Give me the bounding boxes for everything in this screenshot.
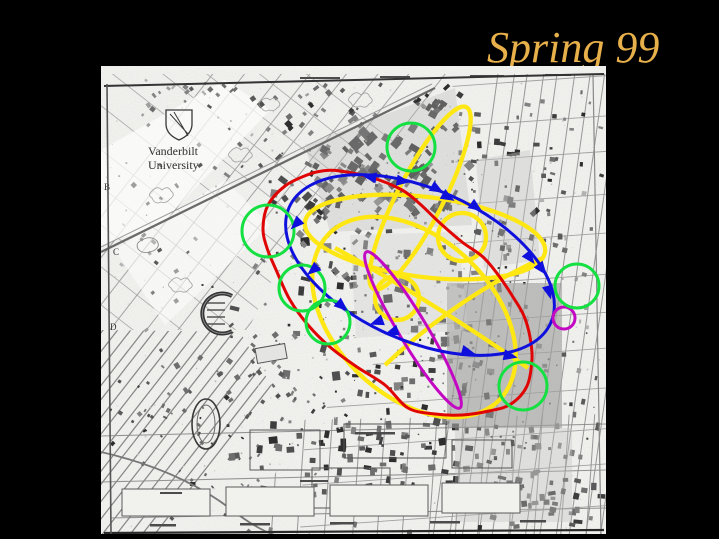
svg-text:University: University (148, 158, 199, 172)
svg-text:Vanderbilt: Vanderbilt (148, 144, 199, 158)
svg-text:Spring 99: Spring 99 (487, 23, 659, 72)
svg-text:D: D (110, 322, 117, 332)
svg-text:B: B (104, 182, 110, 192)
svg-text:C: C (113, 247, 119, 257)
